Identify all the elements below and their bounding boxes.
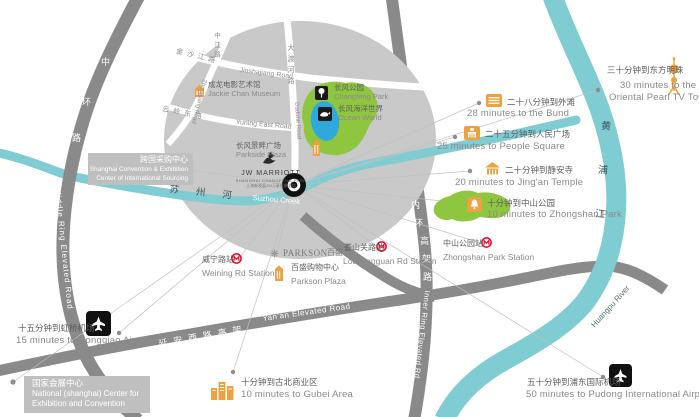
oriental-pearl-en1: 30 minutes to the <box>620 81 696 91</box>
ocean-world-en: Ocean World <box>338 114 382 122</box>
parkson-logo-text: PARKSON <box>283 249 328 258</box>
jingan-temple-icon <box>485 162 500 175</box>
ocean-world-cn: 长风海洋世界 <box>338 105 383 113</box>
changfeng-park-tree-icon <box>315 86 328 100</box>
oriental-pearl-en2: Oriental Pearl TV Tower <box>609 93 699 103</box>
inner-ring-char: 内 <box>411 201 420 210</box>
jackie-chan-museum-cn: 成龙电影艺术馆 <box>208 81 261 89</box>
weining-station-cn: 威宁路站 <box>202 256 234 264</box>
gubei-buildings-icon <box>211 382 234 400</box>
national-center-en2: Exhibition and Convention <box>32 400 125 408</box>
zhongshan-station-en: Zhongshan Park Station <box>443 253 534 262</box>
zhongshan-park-cn: 十分钟到中山公园 <box>487 199 555 208</box>
hotel-name: JW MARRIOTT <box>228 170 314 177</box>
weining-station-en: Weining Rd Station <box>202 269 275 278</box>
changfeng-park-en: Changfeng Park <box>334 93 388 101</box>
oriental-pearl-cn: 三十分钟到东方明珠 <box>607 66 684 75</box>
national-center-en1: National (shanghai) Center for <box>32 390 139 398</box>
middle-ring-char: 环 <box>82 98 91 107</box>
bund-icon <box>486 94 502 107</box>
ocean-world-whale-icon <box>318 107 332 121</box>
people-square-cn: 二十五分钟到人民广场 <box>485 130 570 139</box>
inner-ring-char: 高 <box>420 237 429 246</box>
hongqiao-en: 15 minutes to Hongqiao Airport <box>16 336 152 346</box>
people-square-icon <box>464 126 480 140</box>
national-center-box: 国家会展中心 National (shanghai) Center for Ex… <box>24 376 150 413</box>
hongqiao-cn: 十五分钟到虹桥机场 <box>18 324 95 333</box>
parkson-plaza-icon <box>275 266 283 282</box>
bund-en: 28 minutes to the Bund <box>467 109 569 119</box>
parkson-logo-cn: 百盛 <box>327 249 343 257</box>
sourcing-center-cn: 跨国采购中心 <box>140 156 188 164</box>
transport-map: 中 环 路 Middle Ring Elevated Road 内 环 高 架 … <box>0 0 699 417</box>
sourcing-center-en2: Center of International Sourcing <box>96 176 188 183</box>
pudong-en: 50 minutes to Pudong International Airpo… <box>526 390 699 400</box>
loushanguan-station-en: Loushanguan Rd Station <box>343 257 437 266</box>
daduhe-road-chars: 大渡河路 <box>287 44 294 88</box>
middle-ring-char: 路 <box>72 134 81 143</box>
zhongshan-park-bell-icon <box>467 197 482 212</box>
pudong-cn: 五十分钟到浦东国际机场 <box>527 378 621 387</box>
sourcing-center-en1: Shanghai Convention & Exhibition <box>90 167 188 174</box>
loushanguan-station-cn: 娄山关路站 <box>344 244 384 252</box>
people-square-en: 25 minutes to People Square <box>437 142 565 152</box>
zhongshan-station-cn: 中山公园站 <box>443 240 483 248</box>
parkson-en: Parkson Plaza <box>291 277 346 286</box>
jingan-temple-cn: 二十分钟到静安寺 <box>505 166 573 175</box>
inner-ring-char: 路 <box>423 273 432 282</box>
jingan-temple-en: 20 minutes to Jing'an Temple <box>455 178 583 188</box>
parkside-plaza-cn: 长风景畔广场 <box>236 142 281 150</box>
gubei-en: 10 minutes to Gubei Area <box>241 390 353 400</box>
inner-ring-char: 环 <box>414 219 423 228</box>
parkson-cn: 百盛购物中心 <box>291 264 339 272</box>
gubei-cn: 十分钟到古北商业区 <box>241 378 318 387</box>
hotel-cn-name: 上海新发展JW万豪侯爵酒店 <box>228 184 314 188</box>
middle-ring-char: 中 <box>101 58 110 67</box>
zhongshan-park-en: 10 minutes to Zhongshan Park <box>487 210 622 220</box>
national-center-cn: 国家会展中心 <box>32 379 83 388</box>
parkside-plaza-icon <box>313 140 320 157</box>
bund-cn: 二十八分钟到外滩 <box>507 98 575 107</box>
zhongshan-metro-icon <box>482 238 491 247</box>
sourcing-center-box: 跨国采购中心 Shanghai Convention & Exhibition … <box>88 153 193 185</box>
changfeng-park-cn: 长风公园 <box>334 84 364 92</box>
parkside-plaza-en: Parkside Plaza <box>236 151 286 159</box>
parkson-flower-logo <box>271 250 279 258</box>
jackie-chan-museum-en: Jackie Chan Museum <box>208 90 280 98</box>
